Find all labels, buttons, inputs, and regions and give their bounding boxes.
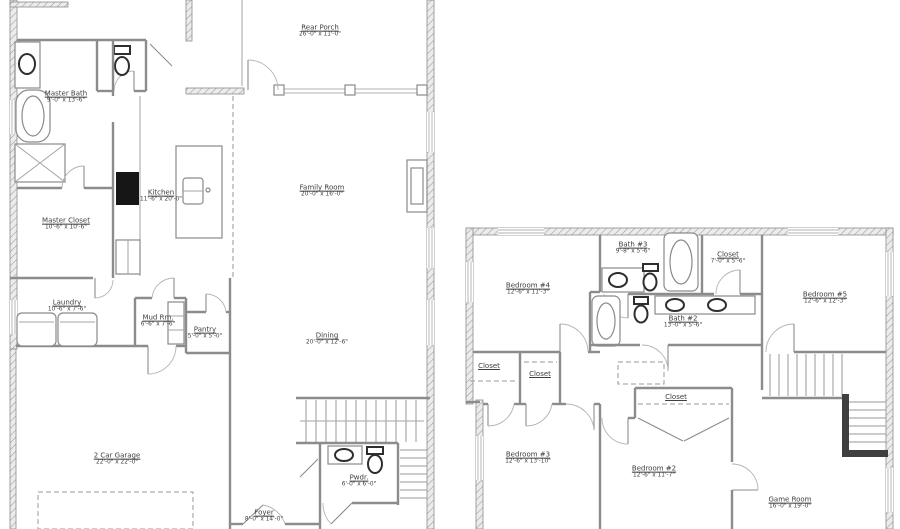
stairs-main — [296, 398, 430, 443]
sink-icon — [602, 268, 644, 292]
hall-closets — [470, 352, 560, 426]
first-floor-plan — [10, 0, 434, 529]
kitchen-island — [176, 146, 222, 238]
mudroom-bench — [168, 302, 184, 344]
powder-room — [300, 443, 398, 529]
shower-icon — [15, 144, 65, 182]
bathtub-icon — [664, 233, 698, 291]
front-door — [230, 505, 320, 524]
toilet-icon — [634, 297, 648, 323]
stairs-second-floor — [762, 352, 888, 457]
garage-door-dashed — [38, 492, 193, 529]
sink-icon — [328, 446, 362, 464]
gameroom-walls — [732, 418, 758, 529]
closet-top-walls — [702, 235, 740, 294]
fireplace-icon — [407, 160, 427, 212]
porch-column — [274, 85, 284, 95]
toilet-icon — [367, 447, 383, 473]
linen-dashed — [618, 362, 664, 384]
toilet-icon — [643, 264, 658, 291]
porch-column — [417, 85, 427, 95]
floor-plan-canvas: Rear Porch 26'-0" x 11'-0" Master Bath 9… — [0, 0, 900, 529]
porch-column — [345, 85, 355, 95]
second-floor-plan — [466, 228, 893, 529]
bedroom3-walls — [560, 404, 600, 529]
washer-dryer-icons — [17, 313, 97, 346]
bath2 — [590, 296, 762, 371]
range-icon — [116, 172, 139, 205]
bedroom4-walls — [473, 235, 600, 352]
double-vanity-icon — [655, 296, 755, 314]
rear-porch — [242, 0, 427, 95]
toilet-icon — [114, 46, 130, 75]
bathtub-icon — [592, 296, 620, 346]
stairs-lower-run — [398, 443, 427, 505]
bedroom5-walls — [762, 235, 886, 352]
bedroom2-closet — [602, 388, 732, 444]
floor-plan-drawing — [0, 0, 900, 529]
vanity-sink-icon — [15, 42, 40, 88]
bathtub-icon — [16, 90, 50, 142]
